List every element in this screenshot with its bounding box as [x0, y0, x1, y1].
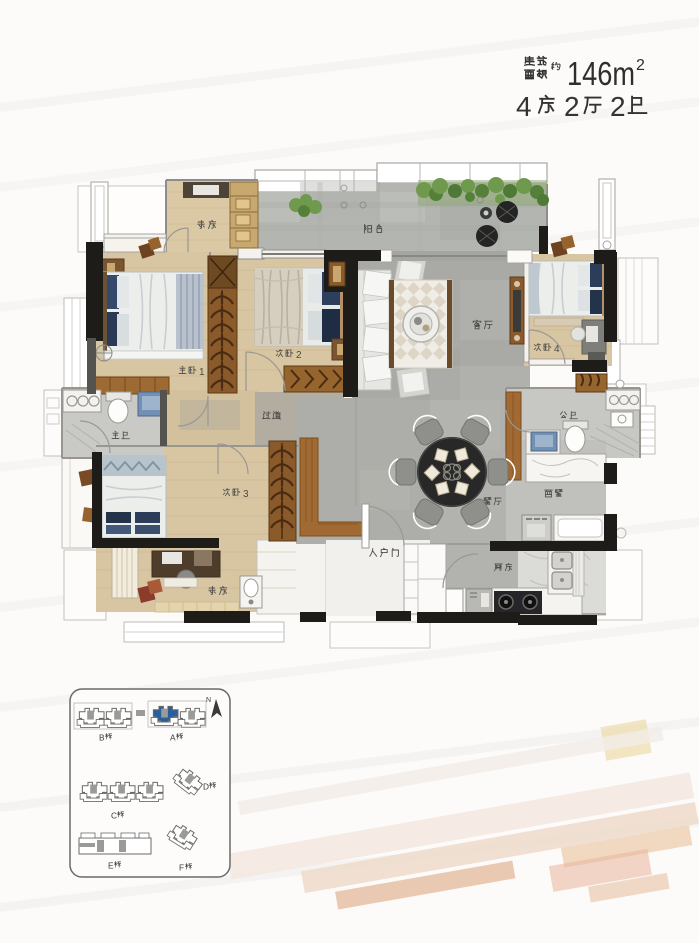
svg-text:4: 4 — [516, 91, 532, 122]
svg-text:146m: 146m — [567, 55, 635, 92]
svg-text:1: 1 — [199, 367, 205, 378]
svg-text:N: N — [206, 697, 211, 704]
svg-text:2: 2 — [610, 91, 626, 122]
svg-text:A: A — [170, 732, 176, 742]
svg-text:2: 2 — [296, 350, 302, 361]
svg-text:3: 3 — [243, 489, 249, 500]
svg-text:2: 2 — [564, 91, 580, 122]
svg-text:D: D — [203, 781, 209, 791]
svg-text:2: 2 — [636, 57, 645, 74]
svg-text:E: E — [108, 860, 114, 870]
svg-text:C: C — [111, 810, 117, 820]
svg-text:B: B — [99, 732, 105, 742]
svg-text:F: F — [179, 862, 184, 872]
